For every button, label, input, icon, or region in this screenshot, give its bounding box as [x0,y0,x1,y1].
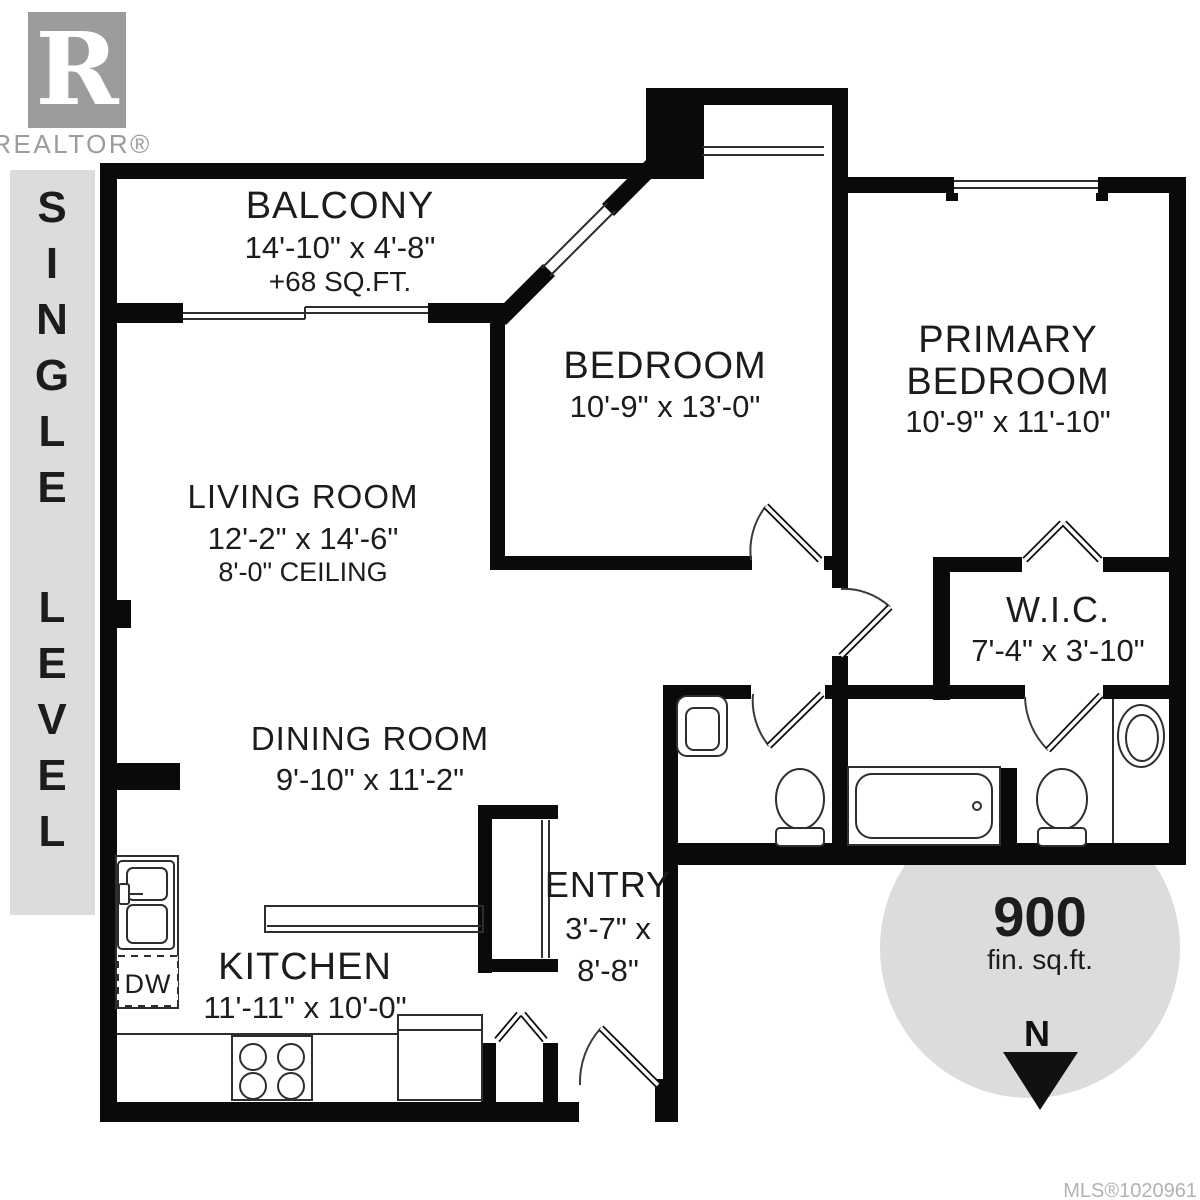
burner-icon [278,1073,304,1099]
burner-icon [278,1044,304,1070]
svg-text:S: S [37,183,66,232]
primary-bedroom-label-line2: BEDROOM [906,361,1109,403]
balcony-dims: 14'-10" x 4'-8" [245,230,436,265]
svg-text:L: L [39,583,66,632]
wall-left [100,163,117,1122]
mls-number: MLS®1020961 [1063,1180,1197,1200]
wall-top-balcony [100,163,658,179]
compass-north-label: N [1024,1013,1050,1054]
wall-wic-top-left [933,557,1022,572]
wall-wic-left [933,557,950,700]
kitchen-dims: 11'-11" x 10'-0" [203,990,406,1025]
svg-text:N: N [36,295,68,344]
bedroom-dims: 10'-9" x 13'-0" [570,389,761,424]
svg-text:I: I [46,239,58,288]
wall-divider-upper [832,88,848,588]
entry-dims-line2: 8'-8" [577,953,639,988]
wall-bedroom-bottom-post [824,556,848,570]
entry-dims-line1: 3'-7" x [565,911,651,946]
wall-bedroom-left [490,310,505,570]
fridge [398,1015,482,1100]
balcony-label: BALCONY [246,185,435,227]
floorplan-canvas: 900 fin. sq.ft. N [0,0,1200,1200]
svg-text:E: E [37,639,66,688]
window-nub-right [1096,193,1108,201]
area-badge-value: 900 [993,885,1086,948]
living-room-dims: 12'-2" x 14'-6" [208,521,399,556]
svg-text:E: E [37,751,66,800]
burner-icon [240,1044,266,1070]
balcony-area: +68 SQ.FT. [269,266,411,297]
kitchen-label: KITCHEN [218,946,392,988]
dishwasher-label: DW [125,969,172,999]
dining-room-label: DINING ROOM [251,720,489,757]
wall-entry-door-stub [655,1079,678,1122]
lower-closet-right [543,1043,558,1102]
wall-left-nub [117,600,131,628]
living-room-label: LIVING ROOM [187,478,418,515]
primary-bedroom-label-line1: PRIMARY [918,319,1097,361]
tub-drain-icon [973,802,981,810]
balcony-sill-cap-left [117,303,183,323]
wall-ensuite-top [848,685,1025,699]
closet-bottom [478,959,558,972]
wall-bottom [100,1102,579,1122]
wall-bottom-right [663,843,1186,865]
area-badge: 900 fin. sq.ft. [987,885,1093,975]
wall-right [1169,177,1186,865]
bath-toilet [776,769,824,829]
wic-dims: 7'-4" x 3'-10" [971,633,1144,668]
ensuite-toilet [1037,769,1087,829]
wall-kitchen-stub [100,763,180,790]
primary-bedroom-dims: 10'-9" x 11'-10" [905,404,1111,439]
window-nub-left [946,193,958,201]
realtor-logo-letter: R [35,10,119,128]
svg-text:V: V [37,695,67,744]
wall-wic-top-right [1103,557,1169,572]
wall-bath-left [663,685,678,865]
realtor-wordmark: REALTOR® [0,129,152,159]
kitchen-faucet-icon [119,884,129,904]
wall-primary-top-left [840,177,954,193]
wall-bedroom-top [646,88,848,105]
svg-text:L: L [39,807,66,856]
dining-room-dims: 9'-10" x 11'-2" [276,762,464,797]
entry-label: ENTRY [545,864,671,905]
wall-bedroom-bottom [490,556,752,570]
svg-text:L: L [39,407,66,456]
closet-left [478,805,492,973]
wic-label: W.I.C. [1006,589,1110,630]
bedroom-label: BEDROOM [563,345,766,387]
burner-icon [240,1073,266,1099]
svg-text:E: E [37,463,66,512]
living-room-ceiling: 8'-0" CEILING [218,557,387,587]
area-badge-unit: fin. sq.ft. [987,944,1093,975]
wall-tub-stub [1000,768,1017,858]
wall-bath-top-post [825,685,848,699]
svg-text:G: G [35,351,69,400]
floorplan-page: 900 fin. sq.ft. N [0,0,1200,1200]
wall-wic-bottom-right [1103,685,1169,699]
lower-closet-left [481,1043,496,1102]
